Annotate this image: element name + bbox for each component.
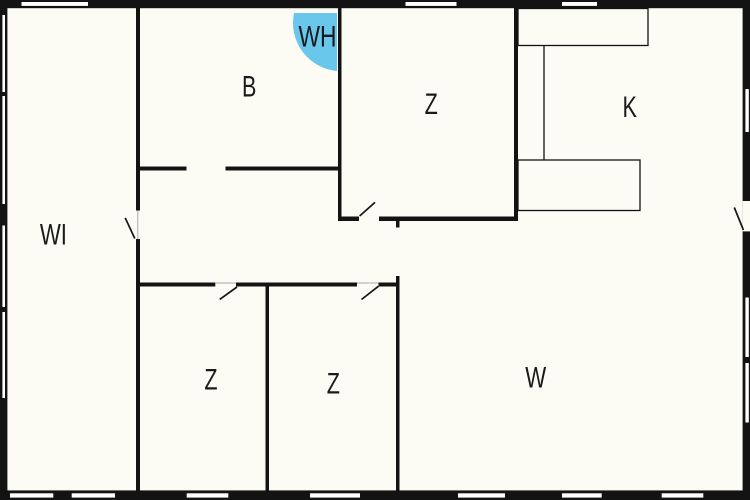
svg-text:Z: Z [327,366,340,400]
svg-text:Z: Z [204,362,217,396]
svg-text:WI: WI [40,217,67,251]
svg-text:Z: Z [425,86,438,120]
svg-text:WH: WH [299,20,337,54]
svg-text:W: W [525,360,546,394]
svg-text:B: B [242,69,256,103]
svg-text:K: K [622,89,637,123]
